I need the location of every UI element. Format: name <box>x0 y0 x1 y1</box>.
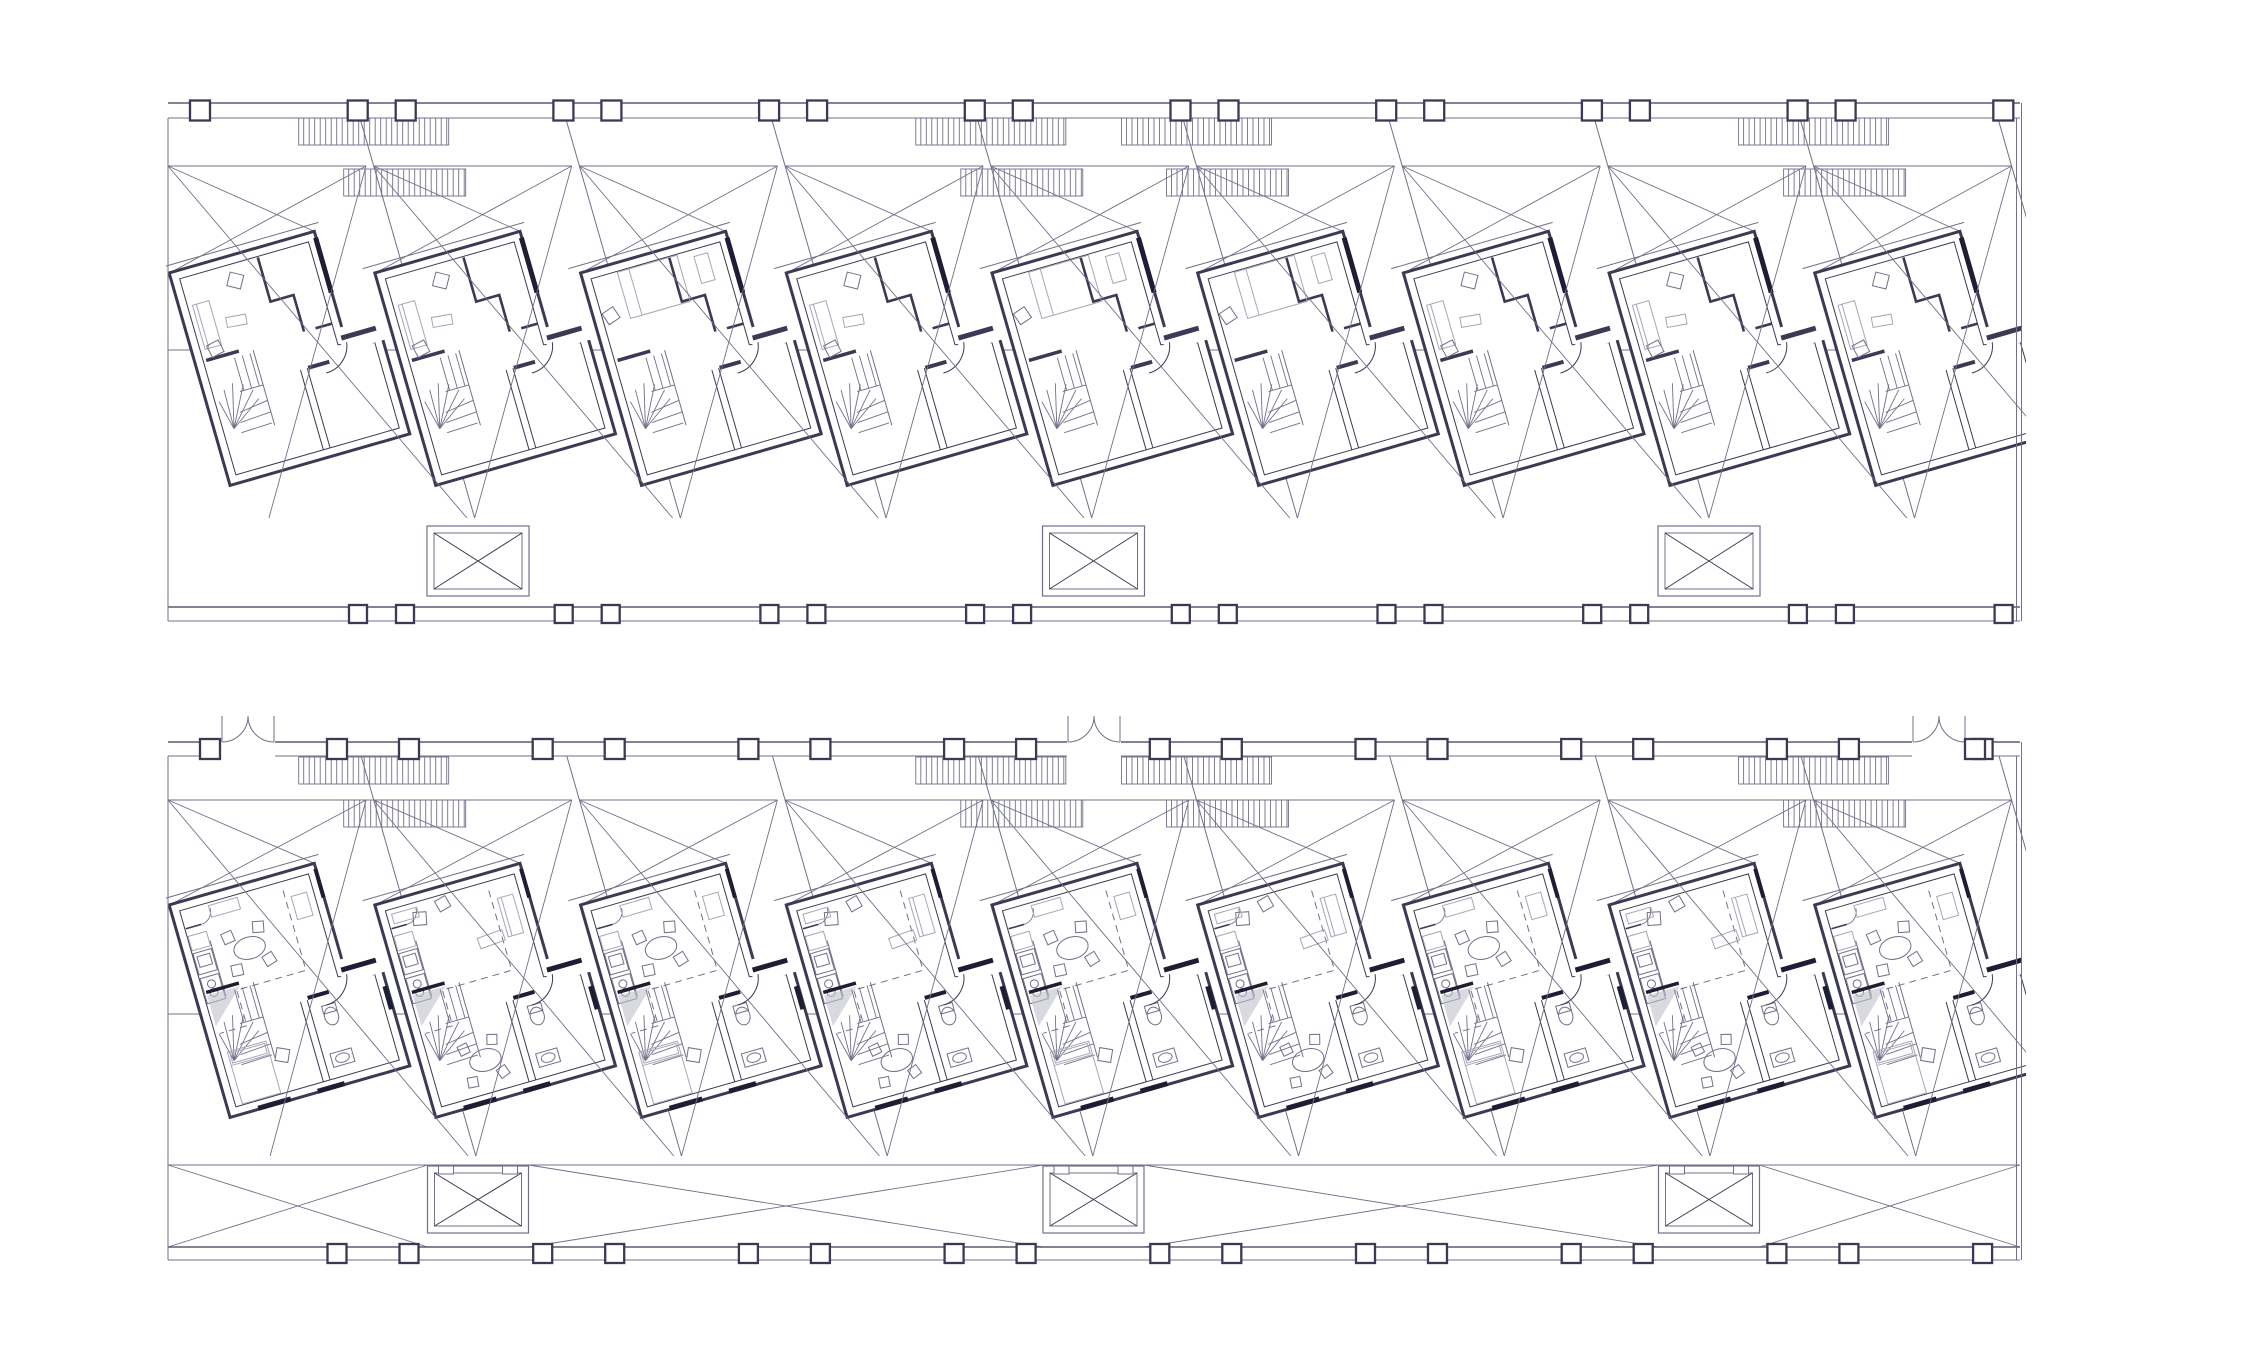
structural-column <box>200 739 220 759</box>
structural-column <box>1356 739 1376 759</box>
structural-column <box>810 739 830 759</box>
walkway-stair-hatch <box>299 757 449 784</box>
structural-column <box>1150 739 1170 759</box>
structural-column <box>1995 605 2013 623</box>
structural-column <box>1378 605 1396 623</box>
structural-column <box>1428 1244 1447 1263</box>
structural-column <box>759 101 779 121</box>
double-entry-door <box>1912 716 1966 758</box>
walkway-stair-hatch <box>916 118 1066 145</box>
entry-level-strip <box>157 716 2114 1263</box>
void-shaft <box>1043 526 1145 596</box>
structural-column <box>1219 101 1239 121</box>
terrace-stair-hatch <box>961 169 1083 196</box>
structural-column <box>1634 1244 1653 1263</box>
void-shaft <box>427 526 529 596</box>
structural-column <box>396 605 414 623</box>
walkway-stair-hatch <box>1739 757 1889 784</box>
structural-column <box>1965 739 1985 759</box>
walkway-stair-hatch <box>1739 118 1889 145</box>
structural-column <box>1017 1244 1036 1263</box>
structural-column <box>1993 101 2013 121</box>
structural-column <box>1561 739 1581 759</box>
unit-plan-lower-6 <box>1185 845 1443 1122</box>
structural-column <box>533 1244 552 1263</box>
unit-plan-upper-7 <box>1391 213 1648 488</box>
structural-column <box>1789 605 1807 623</box>
structural-column <box>1013 605 1031 623</box>
structural-column <box>349 605 367 623</box>
structural-column <box>1356 1244 1375 1263</box>
structural-column <box>1222 739 1242 759</box>
structural-column <box>602 605 620 623</box>
structural-column <box>1633 739 1653 759</box>
structural-column <box>739 1244 758 1263</box>
unit-plan-lower-3 <box>568 845 826 1122</box>
structural-column <box>328 1244 347 1263</box>
structural-column <box>944 739 964 759</box>
structural-column <box>1839 1244 1858 1263</box>
structural-column <box>348 101 368 121</box>
structural-column <box>1171 101 1191 121</box>
structural-column <box>327 739 347 759</box>
walkway-stair-hatch <box>299 118 449 145</box>
unit-plan-lower-2 <box>363 845 621 1122</box>
structural-column <box>396 101 416 121</box>
structural-column <box>1767 1244 1786 1263</box>
structural-column <box>965 101 985 121</box>
unit-plan-upper-6 <box>1185 213 1442 488</box>
structural-column <box>553 101 573 121</box>
floor-plan-page <box>0 0 2250 1350</box>
structural-column <box>1424 101 1444 121</box>
unit-plan-upper-3 <box>568 213 825 488</box>
structural-column <box>399 739 419 759</box>
structural-column <box>738 739 758 759</box>
walkway-stair-hatch <box>916 757 1066 784</box>
structural-column <box>1630 101 1650 121</box>
structural-column <box>1425 605 1443 623</box>
elevator-shaft <box>1043 1166 1144 1233</box>
unit-plan-upper-8 <box>1597 213 1854 488</box>
unit-plan-upper-5 <box>980 213 1237 488</box>
structural-column <box>1583 605 1601 623</box>
structural-column <box>1013 101 1033 121</box>
unit-plan-upper-4 <box>774 213 1031 488</box>
walkway-stair-hatch <box>1122 118 1272 145</box>
structural-column <box>1376 101 1396 121</box>
structural-column <box>605 1244 624 1263</box>
terrace-stair-hatch <box>1167 169 1289 196</box>
elevator-shaft <box>428 1166 529 1233</box>
structural-column <box>1172 605 1190 623</box>
unit-plan-upper-2 <box>363 213 620 488</box>
structural-column <box>760 605 778 623</box>
terrace-stair-hatch <box>344 169 466 196</box>
structural-column <box>605 739 625 759</box>
terrace-stair-hatch <box>1784 169 1906 196</box>
structural-column <box>1973 1244 1992 1263</box>
structural-column <box>400 1244 419 1263</box>
structural-column <box>811 1244 830 1263</box>
structural-column <box>1839 739 1859 759</box>
walkway-stair-hatch <box>1122 757 1272 784</box>
structural-column <box>1562 1244 1581 1263</box>
structural-column <box>945 1244 964 1263</box>
structural-column <box>1836 605 1854 623</box>
structural-column <box>190 101 210 121</box>
structural-column <box>533 739 553 759</box>
double-entry-door <box>1067 716 1121 758</box>
structural-column <box>807 101 827 121</box>
structural-column <box>1219 605 1237 623</box>
structural-column <box>1428 739 1448 759</box>
structural-column <box>1222 1244 1241 1263</box>
upper-level-strip <box>157 101 2113 624</box>
structural-column <box>1836 101 1856 121</box>
structural-column <box>966 605 984 623</box>
structural-column <box>1150 1244 1169 1263</box>
unit-plan-lower-7 <box>1391 845 1649 1122</box>
elevator-shaft <box>1659 1166 1760 1233</box>
structural-column <box>1582 101 1602 121</box>
structural-column <box>1767 739 1787 759</box>
unit-plan-lower-8 <box>1597 845 1855 1122</box>
structural-column <box>807 605 825 623</box>
structural-column <box>1016 739 1036 759</box>
structural-column <box>601 101 621 121</box>
structural-column <box>1788 101 1808 121</box>
double-entry-door <box>221 716 275 758</box>
unit-plan-lower-4 <box>774 845 1032 1122</box>
floor-plan-drawing <box>0 0 2250 1350</box>
unit-plan-lower-5 <box>980 845 1238 1122</box>
void-shaft <box>1658 526 1760 596</box>
unit-plan-upper-1 <box>157 213 414 488</box>
unit-plan-lower-1 <box>157 845 415 1122</box>
structural-column <box>1630 605 1648 623</box>
structural-column <box>555 605 573 623</box>
